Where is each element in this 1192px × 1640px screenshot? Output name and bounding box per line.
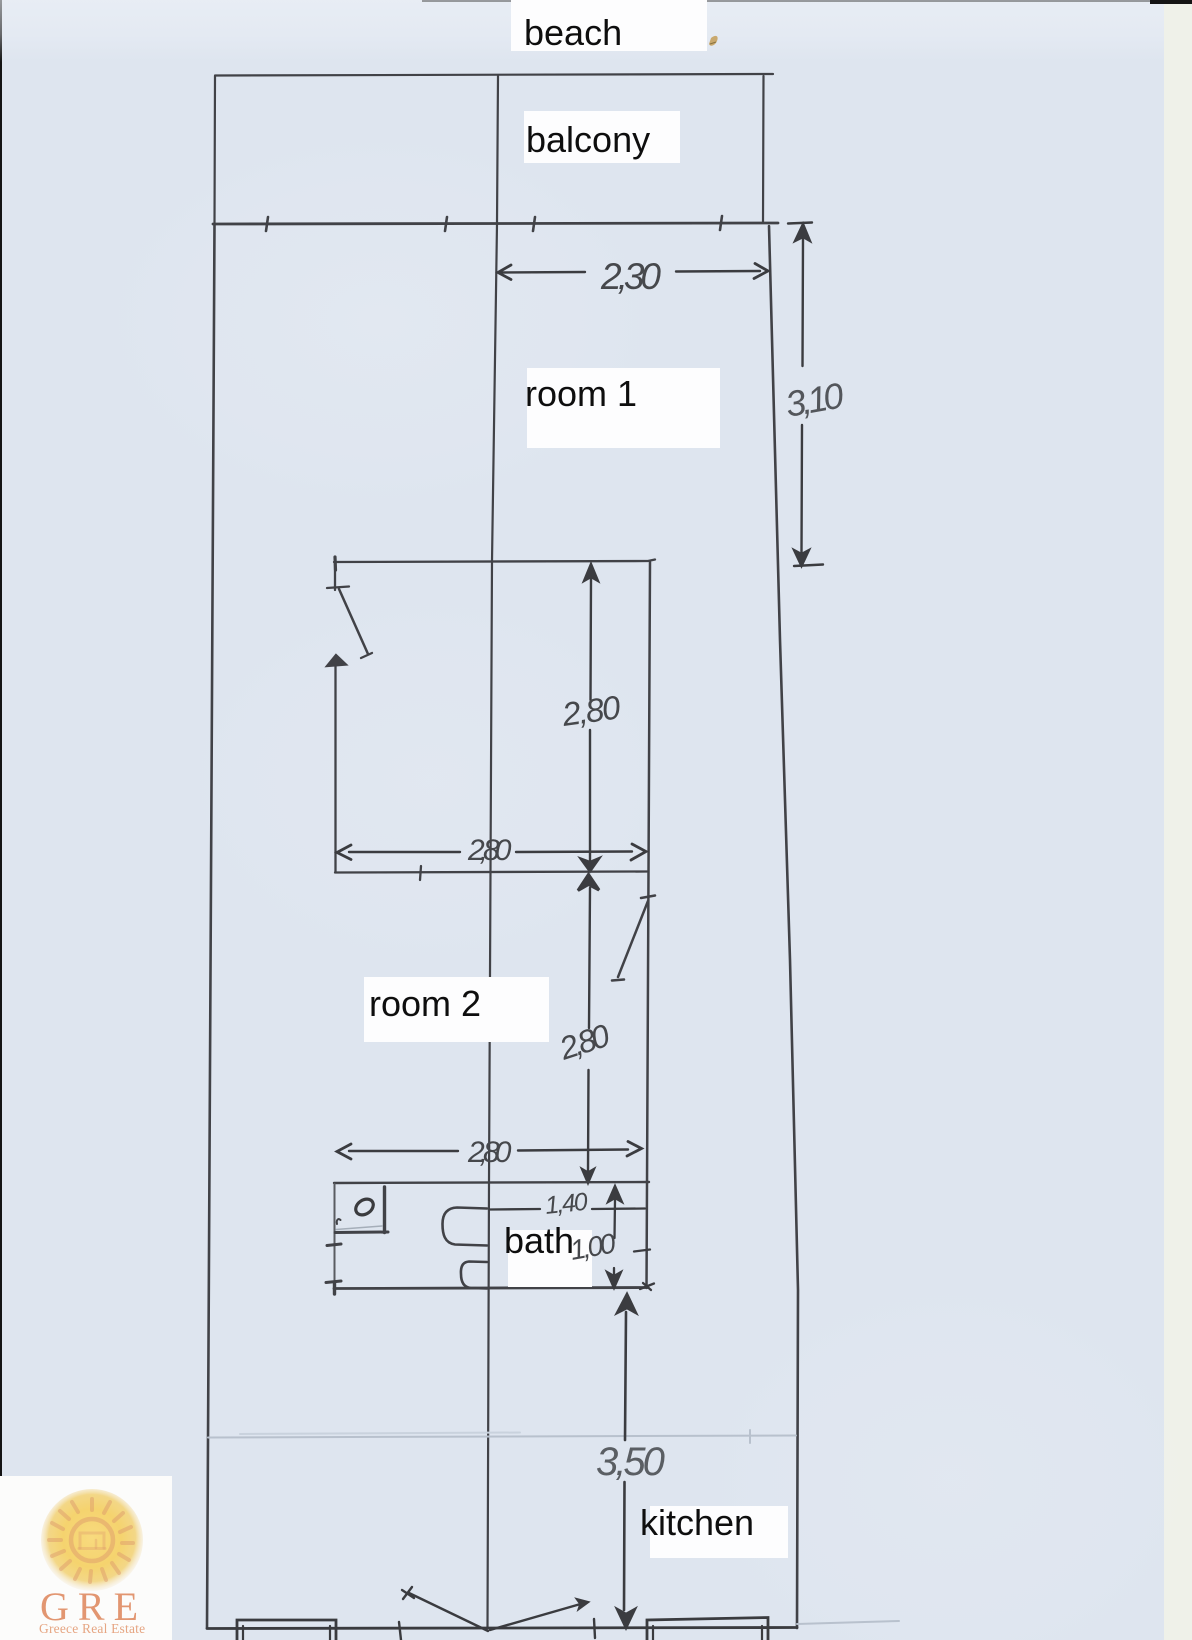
svg-text:bath: bath	[504, 1220, 574, 1261]
svg-text:2,80: 2,80	[467, 1136, 512, 1169]
svg-text:room 2: room 2	[369, 983, 481, 1024]
svg-text:Greece Real Estate: Greece Real Estate	[39, 1621, 145, 1636]
svg-text:1,00: 1,00	[568, 1227, 619, 1266]
svg-text:2,30: 2,30	[600, 256, 661, 297]
svg-text:beach: beach	[524, 12, 622, 53]
svg-text:3,50: 3,50	[596, 1440, 665, 1484]
svg-text:2,80: 2,80	[467, 834, 512, 867]
svg-text:room 1: room 1	[525, 373, 637, 414]
svg-text:balcony: balcony	[526, 119, 650, 160]
svg-text:1,40: 1,40	[544, 1188, 589, 1220]
svg-text:2,80: 2,80	[554, 1017, 614, 1067]
svg-text:3,10: 3,10	[782, 374, 846, 424]
svg-text:kitchen: kitchen	[640, 1502, 754, 1543]
